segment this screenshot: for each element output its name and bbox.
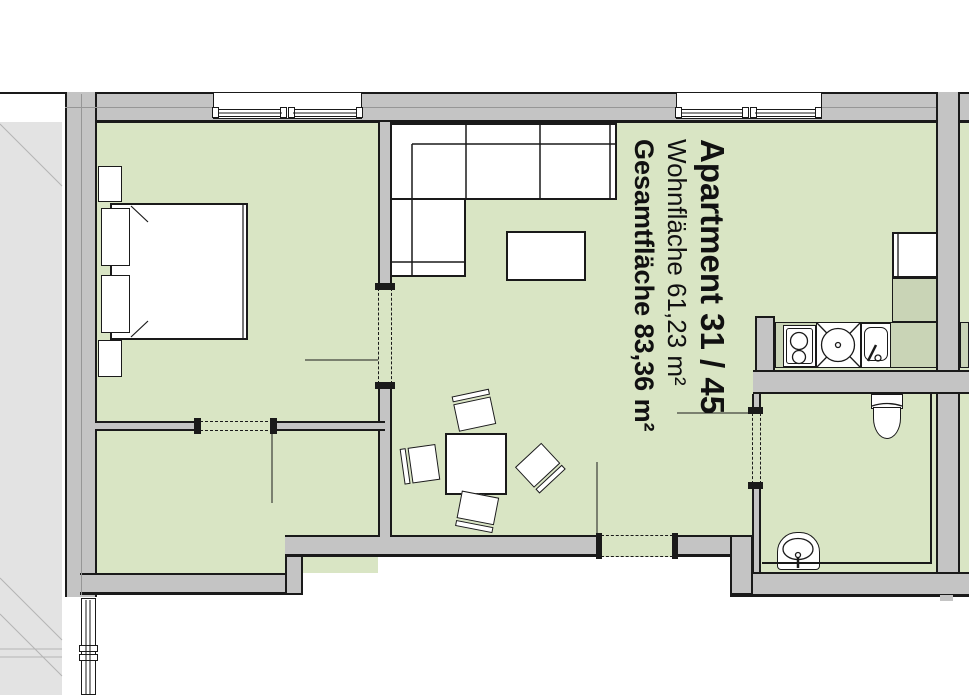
wall-layer-line — [822, 107, 936, 108]
wall-bottom-mid-right — [673, 535, 730, 557]
apartment-label: Apartment 31 / 45 Wohnfläche 61,23 m² Ge… — [627, 139, 732, 439]
window-2-sash — [680, 109, 745, 117]
wall-bottom-left — [80, 573, 303, 595]
dining-chair — [455, 491, 501, 535]
wall-party-tab — [940, 595, 953, 601]
door-opening-entrance — [601, 535, 673, 557]
door-opening-second-room — [200, 421, 273, 431]
window-2-sash — [753, 109, 818, 117]
coffee-table — [506, 231, 586, 281]
window-1-jamb — [288, 107, 295, 118]
living-area-text: Wohnfläche 61,23 m² — [660, 139, 692, 439]
wall-kitchen-stub — [755, 316, 775, 372]
pillow — [101, 275, 130, 333]
wall-bottom-mid-left — [285, 535, 601, 557]
wall-bottom-under-bath — [730, 572, 969, 597]
neighbor-counter — [960, 322, 969, 368]
window-1-jamb — [356, 107, 363, 118]
dining-chair — [400, 443, 445, 485]
kitchen-corner-unit — [816, 322, 861, 368]
wall-party-right — [936, 92, 960, 574]
wall-kitchen-bath — [753, 370, 969, 394]
window-1-jamb — [280, 107, 287, 118]
door-jamb — [375, 382, 395, 389]
door-jamb — [194, 418, 201, 434]
door-jamb — [270, 418, 277, 434]
kitchen-counter-side — [892, 278, 938, 322]
door-opening-bedroom — [378, 288, 392, 384]
kitchen-tall-unit — [892, 232, 938, 278]
wall-bath-left-lower — [752, 484, 761, 572]
wall-layer-line — [362, 107, 676, 108]
sink-basin — [864, 327, 888, 361]
wall-connector-block — [730, 535, 753, 595]
pillow — [101, 208, 130, 266]
window-left-facade-sill — [79, 654, 98, 661]
sofa-body — [390, 123, 617, 200]
door-jamb — [748, 407, 763, 414]
window-1-sash — [217, 109, 284, 117]
floor-plan: Apartment 31 / 45 Wohnfläche 61,23 m² Ge… — [0, 0, 969, 695]
adjacent-building — [0, 122, 62, 695]
site-boundary-line — [0, 92, 67, 94]
apartment-title: Apartment 31 / 45 — [692, 139, 732, 439]
window-left-facade-sill — [79, 645, 98, 652]
nightstand — [98, 340, 122, 377]
window-1-sash — [291, 109, 358, 117]
door-opening-bathroom — [752, 413, 761, 484]
dining-table — [445, 433, 507, 495]
window-2-jamb — [750, 107, 757, 118]
door-jamb — [672, 533, 678, 559]
double-bed — [110, 203, 248, 340]
cooktop-inner — [786, 328, 813, 364]
window-2-jamb — [675, 107, 682, 118]
window-2-jamb — [815, 107, 822, 118]
wall-layer-line — [81, 94, 82, 595]
washbasin — [777, 532, 820, 570]
door-jamb — [596, 533, 602, 559]
door-jamb — [748, 482, 763, 489]
window-1-jamb — [212, 107, 219, 118]
nightstand — [98, 166, 122, 202]
door-jamb — [375, 283, 395, 290]
window-2-jamb — [742, 107, 749, 118]
wall-layer-line — [65, 107, 213, 108]
total-area-text: Gesamtfläche 83,36 m² — [627, 139, 660, 439]
